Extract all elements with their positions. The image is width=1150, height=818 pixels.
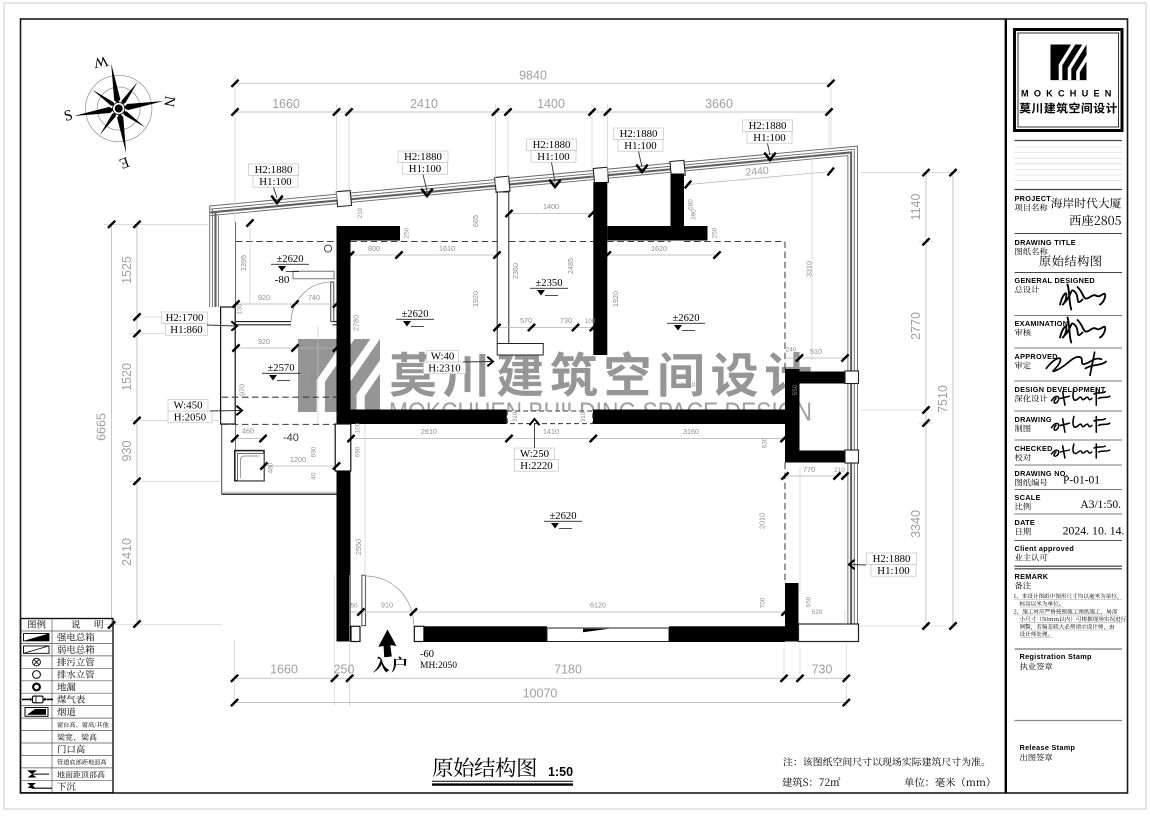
svg-text:P-01-01: P-01-01 [1063,475,1100,487]
svg-text:2770: 2770 [909,312,923,340]
svg-text:390: 390 [691,209,698,220]
svg-text:1620: 1620 [651,244,667,253]
svg-text:1:50: 1:50 [548,765,573,779]
svg-text:460: 460 [242,427,254,436]
svg-text:6120: 6120 [590,601,606,610]
svg-text:130: 130 [237,303,244,314]
svg-text:DATE: DATE [1015,518,1036,527]
svg-text:H2:1700: H2:1700 [166,312,204,324]
svg-text:2610: 2610 [421,427,437,436]
svg-text:10070: 10070 [523,687,558,701]
svg-text:310: 310 [512,411,519,422]
svg-text:570: 570 [520,316,532,325]
svg-text:±2620: ±2620 [276,254,303,265]
svg-text:7510: 7510 [936,385,950,413]
svg-text:H1:100: H1:100 [259,176,291,188]
svg-text:±2570: ±2570 [267,363,294,374]
svg-text:H:2220: H:2220 [520,460,552,472]
svg-text:480: 480 [268,462,275,473]
svg-text:930: 930 [120,441,134,462]
svg-text:H1:100: H1:100 [537,151,569,163]
svg-text:1610: 1610 [439,244,455,253]
svg-text:250: 250 [334,662,355,676]
svg-text:±2620: ±2620 [672,313,699,324]
svg-text:50: 50 [350,603,358,610]
svg-text:MOKCHUEN: MOKCHUEN [1021,89,1116,99]
svg-text:1660: 1660 [272,97,300,111]
svg-text:PROJECT: PROJECT [1015,194,1052,203]
svg-text:1920: 1920 [611,291,620,307]
svg-text:1660: 1660 [270,662,298,676]
svg-text:700: 700 [760,597,767,608]
svg-text:H2:1880: H2:1880 [255,164,293,176]
svg-text:W:40: W:40 [431,351,455,363]
svg-text:MH:2050: MH:2050 [420,661,457,671]
svg-text:W:250: W:250 [520,448,549,460]
svg-text:H2:1880: H2:1880 [620,128,658,140]
svg-text:2410: 2410 [410,97,438,111]
svg-text:1395: 1395 [239,255,248,271]
svg-text:100: 100 [585,318,596,325]
svg-text:550: 550 [792,384,799,395]
svg-text:6665: 6665 [95,413,109,441]
svg-text:Release Stamp: Release Stamp [1020,743,1076,752]
svg-text:H2:1880: H2:1880 [873,553,911,565]
svg-text:7180: 7180 [554,662,582,676]
svg-text:DRAWING: DRAWING [1015,415,1052,424]
svg-text:H1:100: H1:100 [624,140,656,152]
svg-text:970: 970 [238,384,247,396]
svg-text:770: 770 [803,465,815,474]
svg-text:H1:100: H1:100 [409,163,441,175]
svg-text:1140: 1140 [909,194,923,221]
svg-text:H:2310: H:2310 [428,362,460,374]
svg-text:1620: 1620 [308,370,317,386]
svg-text:2024. 10. 14.: 2024. 10. 14. [1063,524,1125,538]
svg-text:740: 740 [308,293,320,302]
svg-text:GENERAL DESIGNED: GENERAL DESIGNED [1015,276,1095,285]
svg-text:2410: 2410 [680,382,695,389]
svg-text:40: 40 [311,472,318,480]
svg-text:DESIGN DEVELOPMENT: DESIGN DEVELOPMENT [1015,385,1106,394]
svg-text:910: 910 [381,601,393,610]
svg-text:690: 690 [355,446,362,457]
svg-text:1520: 1520 [120,363,134,391]
svg-text:W:450: W:450 [174,400,203,412]
svg-text:DRAWING TITLE: DRAWING TITLE [1015,238,1076,247]
svg-text:680: 680 [688,199,695,210]
svg-text:H2:1880: H2:1880 [404,151,442,163]
svg-text:H1:100: H1:100 [753,132,785,144]
svg-text:3340: 3340 [909,510,923,538]
svg-text:REMARK: REMARK [1015,572,1049,581]
svg-text:3160: 3160 [683,427,699,436]
svg-text:665: 665 [471,215,480,227]
svg-text:A3/1:50.: A3/1:50. [1080,499,1121,511]
svg-text:H:2050: H:2050 [174,411,206,423]
svg-text:DRAWING NO.: DRAWING NO. [1015,469,1069,478]
svg-text:920: 920 [258,337,270,346]
svg-text:210: 210 [834,467,845,474]
svg-text:-60: -60 [420,649,434,660]
svg-text:±2620: ±2620 [549,511,576,522]
svg-text:310: 310 [580,411,587,422]
svg-text:1525: 1525 [120,256,134,284]
svg-text:2410: 2410 [120,538,134,566]
svg-text:3660: 3660 [705,97,733,111]
svg-text:630: 630 [762,437,769,448]
svg-text:1920: 1920 [471,291,480,307]
svg-text:-40: -40 [283,432,299,444]
svg-text:Client approved: Client approved [1015,544,1075,553]
svg-text:1200: 1200 [290,455,306,464]
svg-text:2780: 2780 [352,315,361,331]
svg-text:100: 100 [355,422,362,433]
svg-text:±2620: ±2620 [401,309,428,320]
svg-text:1400: 1400 [537,97,565,111]
svg-text:800: 800 [368,244,380,253]
svg-text:730: 730 [560,316,572,325]
svg-text:2010: 2010 [758,513,767,529]
svg-text:2440: 2440 [745,165,770,179]
svg-text:520: 520 [812,609,823,616]
svg-text:H2:1880: H2:1880 [533,139,571,151]
svg-text:9840: 9840 [519,68,547,82]
svg-text:EXAMINATION: EXAMINATION [1015,319,1069,328]
svg-text:1410: 1410 [543,427,559,436]
svg-text:240: 240 [786,347,797,354]
svg-text:920: 920 [258,293,270,302]
svg-text:210: 210 [357,207,364,218]
svg-text:CHECKED: CHECKED [1015,444,1053,453]
svg-text:H1:860: H1:860 [170,324,202,336]
svg-text:510: 510 [810,347,822,356]
svg-text:APPROVED: APPROVED [1015,352,1058,361]
svg-text:H2:1880: H2:1880 [749,120,787,132]
svg-text:Registration Stamp: Registration Stamp [1020,652,1093,661]
svg-text:1400: 1400 [543,202,559,211]
svg-text:250: 250 [404,227,411,238]
svg-text:730: 730 [812,662,833,676]
svg-text:250: 250 [712,227,719,238]
svg-text:SCALE: SCALE [1015,493,1041,502]
svg-text:H1:100: H1:100 [877,565,909,577]
svg-text:-80: -80 [275,274,290,286]
svg-text:690: 690 [311,446,318,457]
svg-text:±2350: ±2350 [535,278,562,289]
svg-text:2360: 2360 [511,263,520,279]
svg-text:2550: 2550 [354,539,363,555]
svg-text:2485: 2485 [566,258,575,274]
svg-text:650: 650 [806,596,813,607]
